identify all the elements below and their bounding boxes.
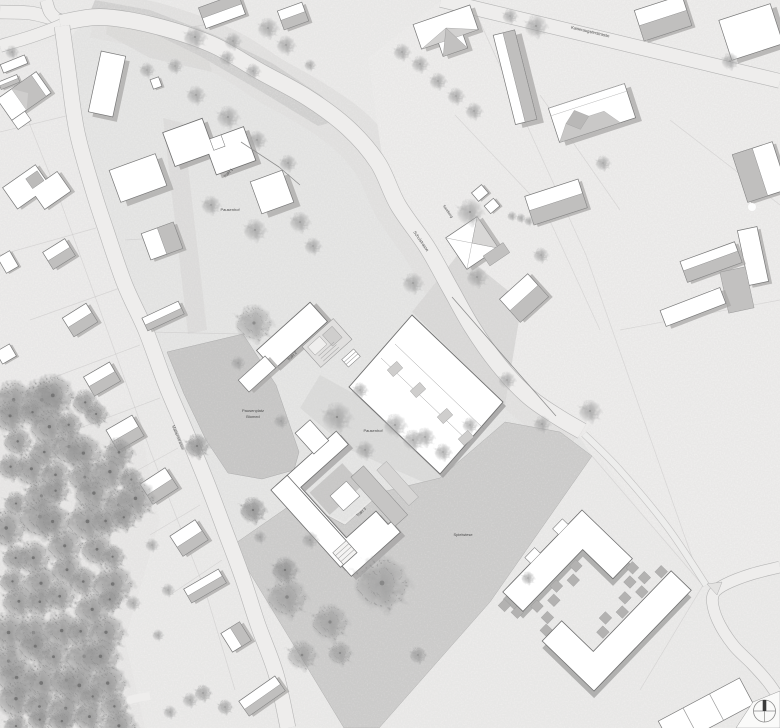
svg-text:Pausenplatz: Pausenplatz bbox=[242, 408, 264, 413]
svg-text:Spielwiese: Spielwiese bbox=[453, 532, 473, 537]
svg-text:Pausenhof: Pausenhof bbox=[363, 428, 383, 433]
svg-text:Biomed: Biomed bbox=[246, 414, 260, 419]
svg-text:Pausenhof: Pausenhof bbox=[220, 207, 240, 212]
